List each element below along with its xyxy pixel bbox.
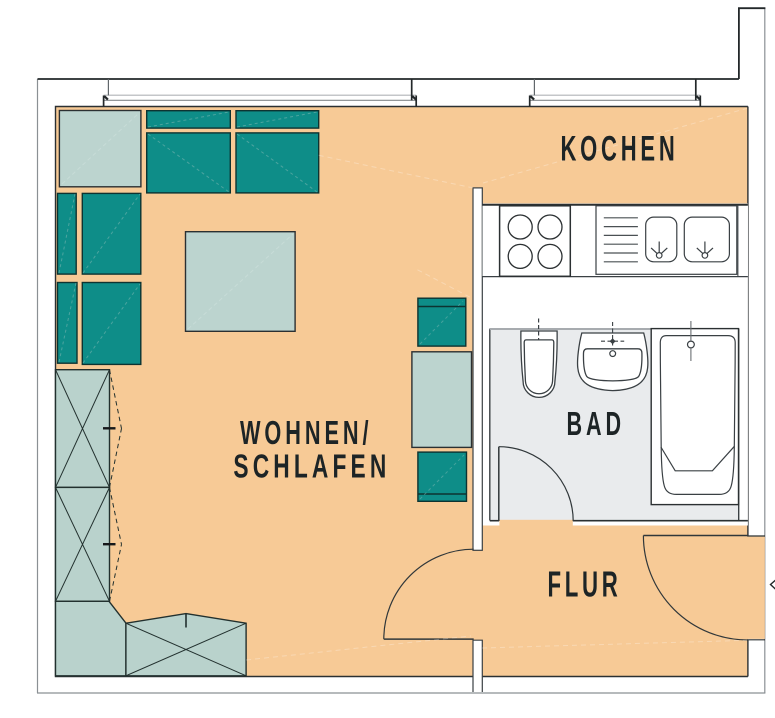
svg-text:BAD: BAD [567,405,626,442]
svg-text:SCHLAFEN: SCHLAFEN [233,448,390,485]
svg-text:FLUR: FLUR [548,563,622,604]
svg-text:WOHNEN/: WOHNEN/ [240,414,373,451]
svg-text:KOCHEN: KOCHEN [561,129,679,168]
